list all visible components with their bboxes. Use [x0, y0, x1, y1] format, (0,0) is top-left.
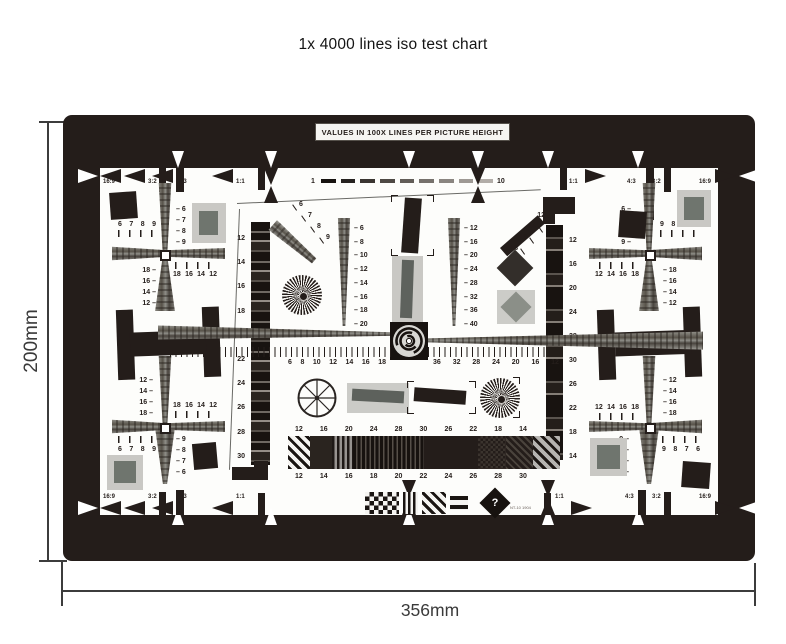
- num-label: 20: [354, 318, 368, 332]
- wedge-scale-row: 6789: [118, 220, 156, 229]
- wedge-scale-list: 6789: [176, 204, 186, 248]
- tick-marks: [118, 230, 158, 237]
- black-square-patch: [192, 442, 218, 470]
- num-label: 28: [494, 472, 502, 481]
- num-label: 16: [320, 425, 328, 434]
- num-label: 8: [671, 220, 675, 229]
- bar-scale-top: 12162024283026221814: [295, 425, 527, 434]
- num-label: 24: [492, 358, 500, 367]
- num-label: 12: [209, 401, 217, 410]
- left-dimension-line: [47, 122, 49, 561]
- black-square-patch: [109, 191, 138, 220]
- num-label: 24: [464, 263, 478, 277]
- aspect-arrow-icon: [585, 169, 606, 183]
- num-label: 8: [354, 236, 368, 250]
- tick-marks: [175, 411, 215, 418]
- num-label: 18: [173, 401, 181, 410]
- chart-header-box: VALUES IN 100X LINES PER PICTURE HEIGHT: [315, 123, 510, 141]
- h-target-left: [116, 306, 238, 380]
- num-label: 16: [519, 233, 527, 242]
- aspect-label-11: 1:1: [555, 494, 564, 500]
- black-square-patch: [681, 461, 711, 489]
- num-label: 30: [519, 472, 527, 481]
- num-label: 16: [569, 253, 577, 277]
- bracket-mark: [391, 249, 398, 256]
- tick-marks: [662, 436, 700, 443]
- gray-square-patch: [192, 203, 226, 243]
- wedge-scale-row: 12141618: [595, 403, 639, 412]
- aspect-label-169: 16:9: [103, 179, 115, 185]
- aspect-bar: [664, 168, 671, 192]
- diagonal-bar-scale: 12141618: [515, 211, 545, 257]
- ruler-scale-left: 681012141618: [288, 358, 386, 367]
- tick-marks: [660, 230, 700, 237]
- num-label: 24: [225, 372, 245, 396]
- num-label: 7: [176, 456, 186, 467]
- num-label: 16: [127, 397, 153, 408]
- num-label: 26: [569, 373, 577, 397]
- cross-center-mark: [645, 250, 656, 261]
- num-label: 14: [607, 403, 615, 412]
- aspect-arrow-icon: [715, 501, 736, 515]
- num-label: 40: [464, 318, 478, 332]
- num-label: 24: [444, 472, 452, 481]
- num-label: 14: [320, 472, 328, 481]
- siemens-star-icon: [282, 275, 322, 315]
- num-label: 9: [176, 237, 186, 248]
- horizontal-lines-pattern: [450, 496, 468, 510]
- num-label: 8: [176, 226, 186, 237]
- page: 1x 4000 lines iso test chart 200mm 356mm…: [0, 0, 786, 644]
- num-label: 7: [129, 445, 133, 454]
- num-label: 16: [130, 276, 156, 287]
- bracket-mark: [469, 381, 476, 388]
- registration-triangle-icon: [265, 151, 277, 168]
- num-label: 14: [528, 222, 536, 231]
- num-label: 9: [152, 445, 156, 454]
- num-label: 7: [176, 215, 186, 226]
- aspect-arrow-icon: [124, 169, 145, 183]
- num-label: 7: [308, 211, 312, 220]
- num-label: 32: [453, 358, 461, 367]
- wedge-scale-list: 18161412: [130, 265, 156, 309]
- num-label: 16: [663, 397, 677, 408]
- bracket-mark: [427, 195, 434, 202]
- num-label: 36: [433, 358, 441, 367]
- num-label: 16: [531, 358, 539, 367]
- num-label: 12: [569, 229, 577, 253]
- num-label: 18: [225, 300, 245, 324]
- num-label: 7: [129, 220, 133, 229]
- cross-center-mark: [160, 250, 171, 261]
- vertical-lines-pattern: [403, 492, 418, 514]
- aspect-bar: [176, 490, 184, 515]
- num-label: 26: [444, 425, 452, 434]
- num-label: 6: [299, 200, 303, 209]
- wedge-scale-row: 9876: [662, 445, 700, 454]
- registration-triangle-icon: [265, 508, 277, 525]
- num-label: 9: [176, 434, 186, 445]
- num-label: 30: [420, 425, 428, 434]
- aspect-arrow-icon: [571, 501, 592, 515]
- bar-scale-bottom: 12141618202224262830: [295, 472, 527, 481]
- gray-square-patch: [590, 438, 627, 476]
- aspect-arrow-icon: [152, 501, 173, 515]
- ruler-scale-right: 36322824201612: [433, 358, 559, 367]
- aspect-label-11: 1:1: [236, 494, 245, 500]
- aspect-arrow-icon: [100, 501, 121, 515]
- num-label: 28: [225, 421, 245, 445]
- num-label: 28: [395, 425, 403, 434]
- aspect-bar: [664, 492, 671, 515]
- num-label: 18: [569, 421, 577, 445]
- num-label: 8: [673, 445, 677, 454]
- num-label: 16: [663, 276, 677, 287]
- aspect-bar: [258, 493, 265, 515]
- num-label: 16: [345, 472, 353, 481]
- registration-triangle-icon: [172, 151, 184, 168]
- num-label: 6: [118, 220, 122, 229]
- num-label: 8: [141, 445, 145, 454]
- num-label: 22: [469, 425, 477, 434]
- num-label: 18: [494, 425, 502, 434]
- wedge-scale-list: 9876: [176, 434, 186, 478]
- bottom-dimension-tick-left: [61, 561, 63, 606]
- num-label: 18: [354, 304, 368, 318]
- num-label: 16: [185, 401, 193, 410]
- num-label: 24: [569, 301, 577, 325]
- num-label: 6: [354, 222, 368, 236]
- multifrequency-bar: [288, 436, 560, 469]
- num-label: 7: [685, 445, 689, 454]
- aspect-label-32: 3:2: [652, 494, 661, 500]
- num-label: 8: [176, 445, 186, 456]
- registration-triangle-icon: [403, 151, 415, 168]
- num-label: 8: [141, 220, 145, 229]
- registration-triangle-icon: [472, 151, 484, 168]
- aspect-arrow-icon: [152, 169, 173, 183]
- scale-start-label: 1: [311, 177, 315, 186]
- tick-marks: [118, 436, 156, 443]
- hourglass-marker-icon: [471, 168, 485, 185]
- num-label: 14: [197, 270, 205, 279]
- aspect-bar: [638, 490, 646, 515]
- black-square-patch: [618, 210, 647, 239]
- aspect-label-169: 16:9: [699, 494, 711, 500]
- zone-plate-target: [390, 322, 428, 360]
- num-label: 14: [663, 287, 677, 298]
- num-label: 6: [176, 467, 186, 478]
- cross-center-mark: [160, 423, 171, 434]
- left-dimension-tick-bottom: [39, 560, 67, 562]
- num-label: 12: [295, 425, 303, 434]
- height-dimension-label: 200mm: [21, 301, 43, 381]
- num-label: 14: [346, 358, 354, 367]
- aspect-arrow-icon: [739, 501, 759, 515]
- num-label: 9: [326, 233, 330, 242]
- gray-square-patch: [107, 455, 143, 490]
- num-label: 14: [130, 287, 156, 298]
- diagonal-lines-pattern: [422, 492, 446, 514]
- num-label: 16: [354, 291, 368, 305]
- aspect-label-11: 1:1: [236, 179, 245, 185]
- num-label: 16: [185, 270, 193, 279]
- tick-marks: [599, 262, 639, 269]
- gray-square-patch: [677, 190, 711, 227]
- num-label: 18: [378, 358, 386, 367]
- num-label: 14: [197, 401, 205, 410]
- registration-triangle-icon: [542, 151, 554, 168]
- aspect-arrow-icon: [715, 169, 736, 183]
- zone-plate-icon: [390, 322, 428, 360]
- aspect-arrow-icon: [212, 169, 233, 183]
- wedge-scale-row: 6789: [118, 445, 156, 454]
- num-label: 18: [663, 265, 677, 276]
- aspect-bar: [560, 168, 567, 190]
- bracket-mark: [427, 249, 434, 256]
- num-label: 22: [569, 397, 577, 421]
- num-label: 9: [152, 220, 156, 229]
- scale-end-label: 10: [497, 177, 505, 186]
- num-label: 16: [619, 403, 627, 412]
- strip-foot: [254, 461, 268, 469]
- page-title: 1x 4000 lines iso test chart: [0, 36, 786, 54]
- num-label: 18: [130, 265, 156, 276]
- hourglass-marker-icon: [264, 168, 278, 185]
- wedge-scale-row: 18161412: [173, 401, 217, 410]
- num-label: 10: [313, 358, 321, 367]
- gray-diamond-box: [497, 290, 535, 324]
- num-label: 6: [696, 445, 700, 454]
- wedge-scale: 1216202428323640: [464, 222, 478, 332]
- wedge-scale-list: 12141618: [663, 375, 677, 419]
- num-label: 16: [464, 236, 478, 250]
- num-label: 28: [464, 277, 478, 291]
- num-label: 18: [663, 408, 677, 419]
- num-label: 16: [619, 270, 627, 279]
- num-label: 12: [595, 403, 603, 412]
- num-label: 18: [173, 270, 181, 279]
- num-label: 20: [395, 472, 403, 481]
- aspect-arrow-icon: [78, 169, 98, 183]
- wedge-scale: 68101214161820: [354, 222, 368, 332]
- aspect-label-43: 4:3: [625, 494, 634, 500]
- num-label: 14: [519, 425, 527, 434]
- num-label: 26: [225, 396, 245, 420]
- num-label: 36: [464, 304, 478, 318]
- bottom-dimension-line: [62, 590, 756, 592]
- width-dimension-label: 356mm: [370, 600, 490, 621]
- num-label: 8: [300, 358, 304, 367]
- aspect-label-43: 4:3: [627, 179, 636, 185]
- ruler-ticks: [428, 347, 562, 357]
- bracket-mark: [469, 407, 476, 414]
- num-label: 12: [595, 270, 603, 279]
- num-label: 16: [362, 358, 370, 367]
- aspect-label-169: 16:9: [699, 179, 711, 185]
- num-label: 28: [472, 358, 480, 367]
- num-label: 26: [469, 472, 477, 481]
- registration-triangle-icon: [632, 151, 644, 168]
- aspect-arrow-icon: [212, 501, 233, 515]
- iso-test-chart: VALUES IN 100X LINES PER PICTURE HEIGHT …: [63, 115, 755, 561]
- maker-logo-text: NT-10 1904: [510, 505, 531, 510]
- ruler-ticks: [170, 347, 392, 357]
- num-label: 14: [354, 277, 368, 291]
- num-label: 20: [512, 358, 520, 367]
- fading-dash-scale: [321, 179, 493, 183]
- spoke-wheel-icon: [297, 378, 337, 418]
- num-label: 20: [569, 277, 577, 301]
- num-label: 30: [569, 349, 577, 373]
- num-label: 6: [288, 358, 292, 367]
- num-label: 18: [631, 270, 639, 279]
- num-label: 9: [662, 445, 666, 454]
- num-label: 6: [118, 445, 122, 454]
- aspect-bar: [176, 168, 184, 192]
- num-label: 20: [464, 249, 478, 263]
- num-label: 18: [127, 408, 153, 419]
- aspect-label-32: 3:2: [148, 494, 157, 500]
- wedge-scale-list: 12141618: [127, 375, 153, 419]
- slanted-edge-box: [392, 256, 423, 322]
- hourglass-marker-icon: [471, 186, 485, 203]
- tick-marks: [599, 413, 639, 420]
- num-label: 12: [209, 270, 217, 279]
- aspect-label-169: 16:9: [103, 494, 115, 500]
- wedge-scale-row: 18161412: [173, 270, 217, 279]
- num-label: 16: [225, 275, 245, 299]
- num-label: 10: [354, 249, 368, 263]
- tick-marks: [175, 262, 215, 269]
- bracket-mark: [513, 377, 520, 384]
- num-label: 8: [317, 222, 321, 231]
- bracket-mark: [407, 381, 414, 388]
- num-label: 14: [607, 270, 615, 279]
- frequency-strip-left: [251, 222, 270, 465]
- maker-logo-glyph: ?: [484, 492, 506, 514]
- num-label: 12: [329, 358, 337, 367]
- num-label: 12: [537, 211, 545, 220]
- hourglass-marker-icon: [264, 186, 278, 203]
- num-label: 12: [464, 222, 478, 236]
- num-label: 9: [615, 237, 631, 248]
- num-label: 14: [127, 386, 153, 397]
- num-label: 12: [551, 358, 559, 367]
- num-label: 20: [345, 425, 353, 434]
- strip-scale-right: 12162024283026221814: [569, 229, 577, 469]
- diagonal-wedge-scale: 6789: [299, 200, 343, 250]
- checkerboard-pattern: [365, 492, 399, 514]
- num-label: 18: [631, 403, 639, 412]
- wedge-scale-row: 12141618: [595, 270, 639, 279]
- num-label: 12: [225, 227, 245, 251]
- aspect-bar: [258, 168, 265, 190]
- num-label: 14: [225, 251, 245, 275]
- num-label: 30: [225, 445, 245, 469]
- num-label: 12: [130, 298, 156, 309]
- aspect-label-11: 1:1: [569, 179, 578, 185]
- num-label: 6: [176, 204, 186, 215]
- num-label: 24: [370, 425, 378, 434]
- wedge-scale-list: 18161412: [663, 265, 677, 309]
- num-label: 18: [370, 472, 378, 481]
- bracket-mark: [407, 407, 414, 414]
- num-label: 12: [354, 263, 368, 277]
- bracket-mark: [391, 195, 398, 202]
- aspect-arrow-icon: [124, 501, 145, 515]
- num-label: 9: [660, 220, 664, 229]
- aspect-arrow-icon: [78, 501, 98, 515]
- cross-center-mark: [645, 423, 656, 434]
- aspect-bar: [544, 493, 551, 515]
- spoke-wheel-target: [297, 378, 337, 418]
- num-label: 22: [420, 472, 428, 481]
- num-label: 12: [295, 472, 303, 481]
- num-label: 14: [569, 445, 577, 469]
- num-label: 32: [464, 291, 478, 305]
- bottom-dimension-tick-right: [754, 563, 756, 606]
- slanted-edge-box: [347, 383, 409, 413]
- num-label: 14: [663, 386, 677, 397]
- bracket-mark: [513, 411, 520, 418]
- aspect-arrow-icon: [739, 169, 759, 183]
